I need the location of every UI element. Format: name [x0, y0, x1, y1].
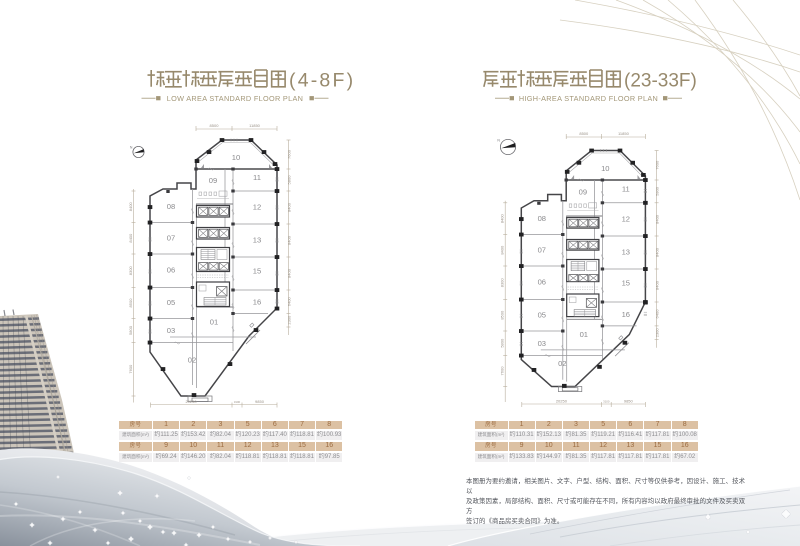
- svg-text:12: 12: [253, 203, 261, 212]
- svg-text:13: 13: [622, 248, 630, 257]
- svg-text:N: N: [497, 138, 500, 142]
- svg-text:20250: 20250: [185, 399, 197, 404]
- svg-text:(23-33F): (23-33F): [624, 70, 697, 91]
- svg-text:06: 06: [167, 266, 175, 275]
- svg-text:8300: 8300: [500, 278, 505, 288]
- svg-text:15: 15: [622, 279, 630, 288]
- svg-text:8500: 8500: [579, 131, 589, 136]
- svg-text:7600: 7600: [286, 149, 291, 159]
- svg-text:12: 12: [622, 215, 630, 224]
- svg-text:8400: 8400: [500, 245, 505, 255]
- svg-text:2300: 2300: [654, 328, 659, 338]
- svg-text:11: 11: [253, 173, 261, 182]
- svg-text:8500: 8500: [128, 298, 133, 308]
- svg-text:8400: 8400: [654, 214, 659, 224]
- svg-text:9850: 9850: [255, 399, 265, 404]
- svg-text:11850: 11850: [249, 123, 261, 128]
- svg-text:10: 10: [601, 164, 609, 173]
- svg-text:5800: 5800: [128, 325, 133, 335]
- svg-text:16: 16: [253, 298, 261, 307]
- svg-text:09: 09: [209, 176, 217, 185]
- svg-text:08: 08: [167, 202, 175, 211]
- svg-text:8400: 8400: [286, 235, 291, 245]
- svg-text:11850: 11850: [618, 131, 630, 136]
- svg-text:N: N: [130, 145, 133, 149]
- svg-text:03: 03: [538, 339, 546, 348]
- svg-text:07: 07: [167, 234, 175, 243]
- svg-text:(4-8F): (4-8F): [289, 69, 355, 91]
- svg-text:8400: 8400: [500, 213, 505, 223]
- svg-text:2300: 2300: [286, 315, 291, 325]
- svg-text:03: 03: [167, 326, 175, 335]
- svg-text:5800: 5800: [286, 175, 291, 185]
- svg-text:16: 16: [622, 310, 630, 319]
- svg-text:09: 09: [579, 188, 587, 197]
- svg-text:5800: 5800: [500, 338, 505, 348]
- svg-text:8400: 8400: [128, 233, 133, 243]
- svg-text:6400: 6400: [654, 309, 659, 319]
- svg-text:7600: 7600: [654, 160, 659, 170]
- svg-text:HIGH-AREA STANDARD FLOOR PLAN: HIGH-AREA STANDARD FLOOR PLAN: [519, 94, 658, 103]
- svg-text:05: 05: [167, 298, 175, 307]
- svg-text:01: 01: [580, 330, 588, 339]
- svg-text:08: 08: [538, 214, 546, 223]
- svg-text:13: 13: [253, 236, 261, 245]
- svg-text:3100: 3100: [603, 400, 610, 404]
- svg-text:LOW AREA STANDARD FLOOR PLAN: LOW AREA STANDARD FLOOR PLAN: [167, 94, 304, 103]
- svg-text:8400: 8400: [654, 247, 659, 257]
- svg-text:8300: 8300: [128, 266, 133, 276]
- svg-text:8500: 8500: [500, 310, 505, 320]
- svg-text:6400: 6400: [286, 297, 291, 307]
- svg-text:7600: 7600: [500, 366, 505, 376]
- svg-text:01: 01: [210, 318, 218, 327]
- svg-text:10: 10: [232, 153, 240, 162]
- svg-text:06: 06: [538, 278, 546, 287]
- svg-text:5800: 5800: [654, 186, 659, 196]
- svg-text:11: 11: [622, 184, 630, 193]
- svg-text:9850: 9850: [624, 399, 634, 404]
- svg-text:7600: 7600: [128, 364, 133, 374]
- svg-text:15: 15: [253, 267, 261, 276]
- svg-text:05: 05: [538, 310, 546, 319]
- svg-text:8400: 8400: [286, 202, 291, 212]
- svg-text:8400: 8400: [654, 280, 659, 290]
- svg-text:02: 02: [558, 359, 566, 368]
- svg-text:20250: 20250: [556, 399, 568, 404]
- svg-text:3100: 3100: [234, 400, 241, 404]
- svg-text:8400: 8400: [286, 268, 291, 278]
- svg-text:8400: 8400: [128, 202, 133, 212]
- svg-text:8500: 8500: [210, 123, 220, 128]
- svg-text:02: 02: [188, 356, 196, 365]
- svg-text:07: 07: [538, 246, 546, 255]
